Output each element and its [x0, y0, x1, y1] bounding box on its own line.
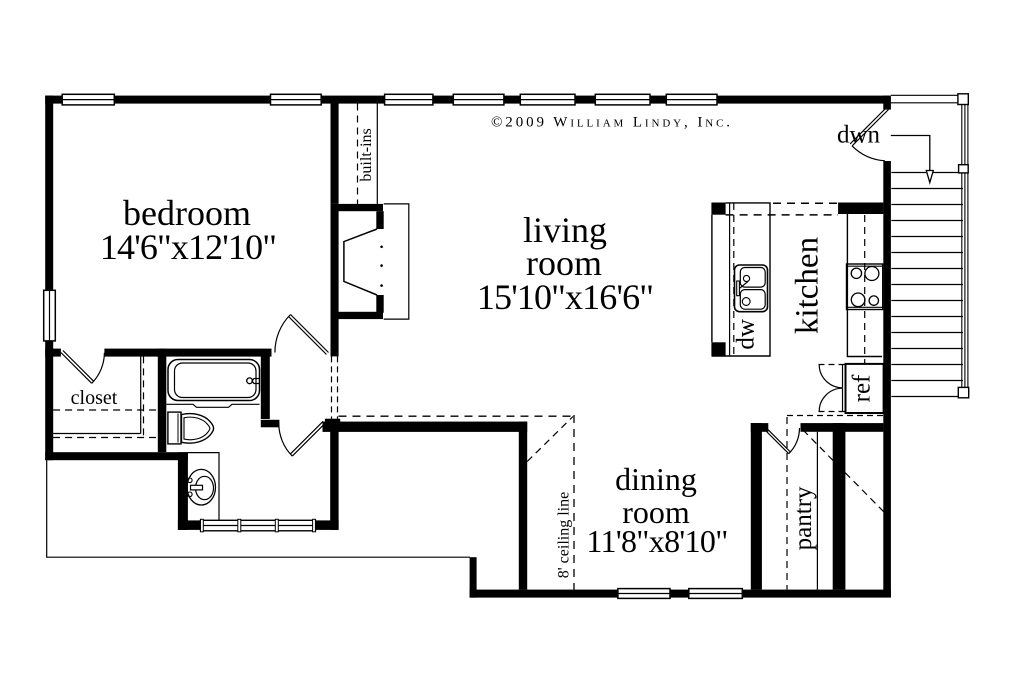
- svg-text:14'6"x12'10": 14'6"x12'10": [100, 227, 276, 267]
- svg-text:8' ceiling line: 8' ceiling line: [556, 492, 573, 578]
- svg-text:kitchen: kitchen: [790, 237, 826, 334]
- svg-text:built-ins: built-ins: [358, 128, 375, 181]
- svg-text:dw: dw: [733, 319, 760, 350]
- svg-text:dining: dining: [615, 461, 697, 497]
- svg-text:closet: closet: [71, 387, 118, 409]
- svg-text:11'8"x8'10": 11'8"x8'10": [586, 523, 727, 559]
- svg-text:15'10"x16'6": 15'10"x16'6": [477, 277, 653, 317]
- svg-text:pantry: pantry: [790, 486, 817, 550]
- svg-text:ref: ref: [849, 374, 876, 402]
- svg-text:©2009 William Lindy, Inc.: ©2009 William Lindy, Inc.: [491, 115, 733, 131]
